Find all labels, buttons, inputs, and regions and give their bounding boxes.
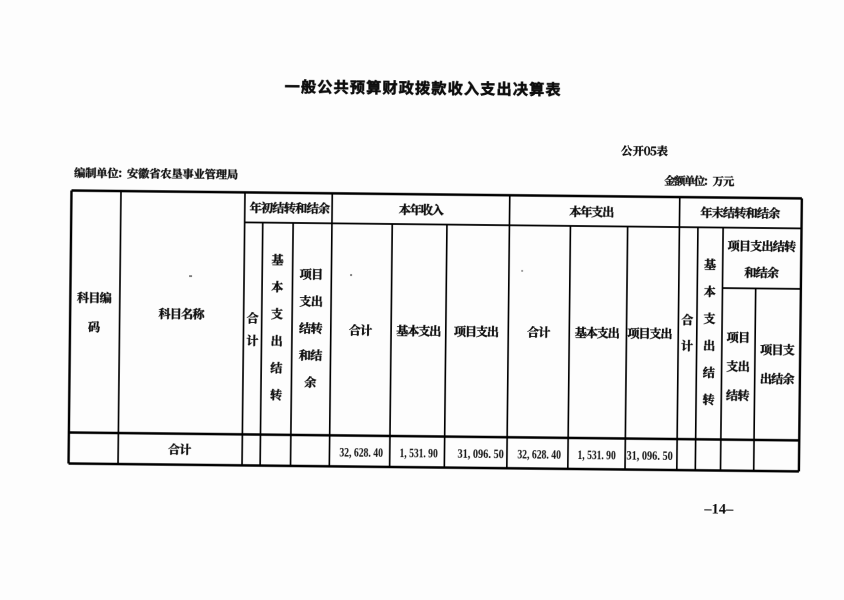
svg-text:–14–: –14–: [703, 501, 734, 517]
svg-text:1, 531. 90: 1, 531. 90: [399, 446, 437, 460]
svg-text:31, 096. 50: 31, 096. 50: [457, 447, 503, 461]
svg-text:32, 628. 40: 32, 628. 40: [339, 445, 383, 459]
svg-text:31, 096. 50: 31, 096. 50: [626, 448, 672, 462]
svg-text:1, 531. 90: 1, 531. 90: [577, 448, 615, 462]
svg-text:32, 628. 40: 32, 628. 40: [517, 447, 561, 461]
